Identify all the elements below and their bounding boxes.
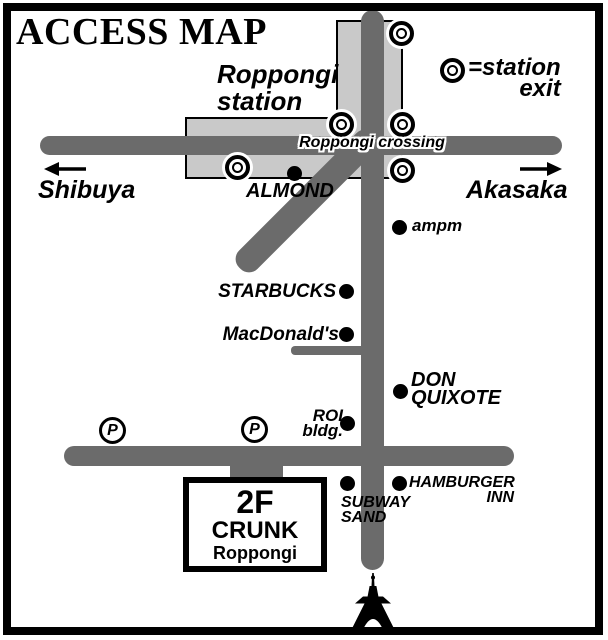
map-border: [3, 3, 603, 635]
access-map: ACCESS MAP =station exit Roppongi statio…: [0, 0, 608, 640]
